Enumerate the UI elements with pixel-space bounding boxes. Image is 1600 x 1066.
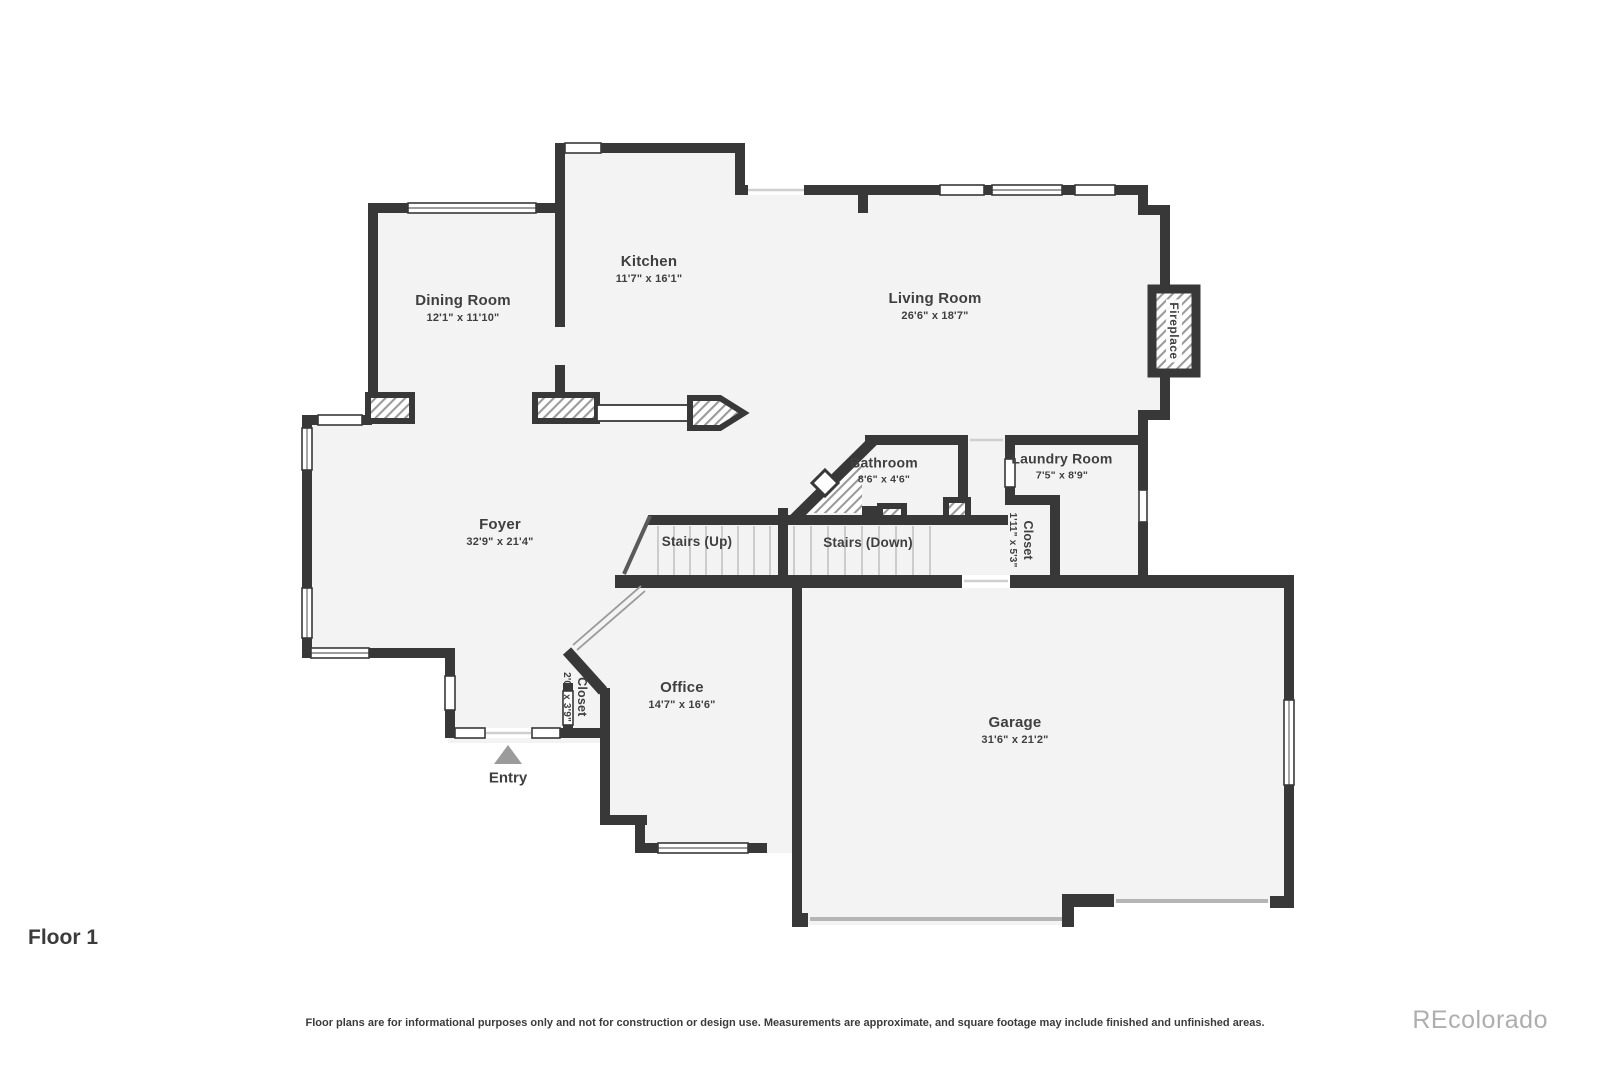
watermark-text: REcolorado bbox=[1412, 1006, 1548, 1035]
half-wall-hatch bbox=[880, 506, 904, 518]
wall-segment bbox=[792, 575, 802, 925]
room-dims: 8'6" x 4'6" bbox=[850, 473, 918, 485]
room-dims: 7'5" x 8'9" bbox=[1011, 469, 1112, 481]
window bbox=[1075, 185, 1115, 195]
room-label-garage: Garage 31'6" x 21'2" bbox=[981, 714, 1048, 746]
wall-segment bbox=[792, 913, 808, 927]
room-name: Dining Room bbox=[415, 292, 511, 310]
room-name: Laundry Room bbox=[1011, 451, 1112, 468]
half-wall-hatch bbox=[535, 395, 597, 421]
room-dims: 1'11" x 5'3" bbox=[1007, 512, 1018, 567]
half-wall-hatch bbox=[946, 500, 968, 518]
room-name: Garage bbox=[981, 714, 1048, 732]
room-label-living: Living Room 26'6" x 18'7" bbox=[888, 290, 981, 322]
entry-marker-icon bbox=[494, 745, 522, 764]
office-floor-lower bbox=[600, 740, 800, 853]
room-name: Foyer bbox=[466, 516, 533, 534]
room-dims: 14'7" x 16'6" bbox=[648, 699, 715, 711]
room-label-foyer: Foyer 32'9" x 21'4" bbox=[466, 516, 533, 548]
stairs-up-label: Stairs (Up) bbox=[662, 534, 732, 550]
window bbox=[455, 728, 485, 738]
room-name: Bathroom bbox=[850, 455, 918, 472]
wall-segment bbox=[600, 688, 610, 825]
wall-segment bbox=[1005, 435, 1148, 445]
window bbox=[940, 185, 984, 195]
floorplan-drawing bbox=[0, 0, 1600, 1066]
wall-segment bbox=[368, 203, 378, 397]
fireplace-label: Fireplace bbox=[1166, 299, 1182, 362]
wall-segment bbox=[1160, 205, 1170, 293]
room-label-bathroom: Bathroom 8'6" x 4'6" bbox=[850, 455, 918, 486]
room-dims: 12'1" x 11'10" bbox=[415, 312, 511, 324]
room-name: Office bbox=[648, 679, 715, 697]
window bbox=[318, 415, 362, 425]
kitchen-counter bbox=[597, 405, 689, 421]
room-dims: 11'7" x 16'1" bbox=[616, 273, 683, 285]
wall-segment bbox=[1138, 435, 1148, 490]
stairs-down-label: Stairs (Down) bbox=[823, 535, 913, 551]
room-label-kitchen: Kitchen 11'7" x 16'1" bbox=[616, 253, 683, 285]
room-label-closet-entry: Closet 2'0" x 3'9" bbox=[561, 672, 589, 722]
room-dims: 31'6" x 21'2" bbox=[981, 734, 1048, 746]
room-dims: 2'0" x 3'9" bbox=[561, 672, 572, 722]
floor-title: Floor 1 bbox=[28, 926, 98, 950]
wall-segment bbox=[1050, 495, 1060, 585]
room-label-laundry: Laundry Room 7'5" x 8'9" bbox=[1011, 451, 1112, 482]
room-dims: 26'6" x 18'7" bbox=[888, 310, 981, 322]
room-name: Closet bbox=[1020, 512, 1035, 567]
room-label-office: Office 14'7" x 16'6" bbox=[648, 679, 715, 711]
laundry-door-leaf bbox=[1139, 490, 1147, 522]
wall-segment bbox=[615, 575, 1294, 588]
window bbox=[445, 676, 455, 710]
room-dims: 32'9" x 21'4" bbox=[466, 536, 533, 548]
entry-label: Entry bbox=[489, 770, 527, 787]
stairs-up-text: Stairs (Up) bbox=[662, 534, 732, 550]
wall-segment bbox=[865, 435, 968, 445]
wall-segment bbox=[1062, 894, 1114, 907]
wall-segment bbox=[778, 508, 788, 588]
wall-segment bbox=[555, 143, 565, 327]
room-label-dining: Dining Room 12'1" x 11'10" bbox=[415, 292, 511, 324]
wall-segment bbox=[858, 195, 868, 213]
half-wall-hatch bbox=[368, 395, 412, 421]
room-name: Kitchen bbox=[616, 253, 683, 271]
room-name: Closet bbox=[574, 672, 589, 722]
disclaimer-text: Floor plans are for informational purpos… bbox=[0, 1017, 1570, 1029]
window bbox=[565, 143, 601, 153]
room-label-closet-laundry: Closet 1'11" x 5'3" bbox=[1007, 512, 1035, 567]
stairs-down-text: Stairs (Down) bbox=[823, 535, 913, 551]
floorplan-page: Dining Room 12'1" x 11'10" Kitchen 11'7"… bbox=[0, 0, 1600, 1066]
window bbox=[532, 728, 560, 738]
garage-floor bbox=[797, 580, 1289, 925]
room-name: Living Room bbox=[888, 290, 981, 308]
wall-segment bbox=[1270, 896, 1294, 908]
